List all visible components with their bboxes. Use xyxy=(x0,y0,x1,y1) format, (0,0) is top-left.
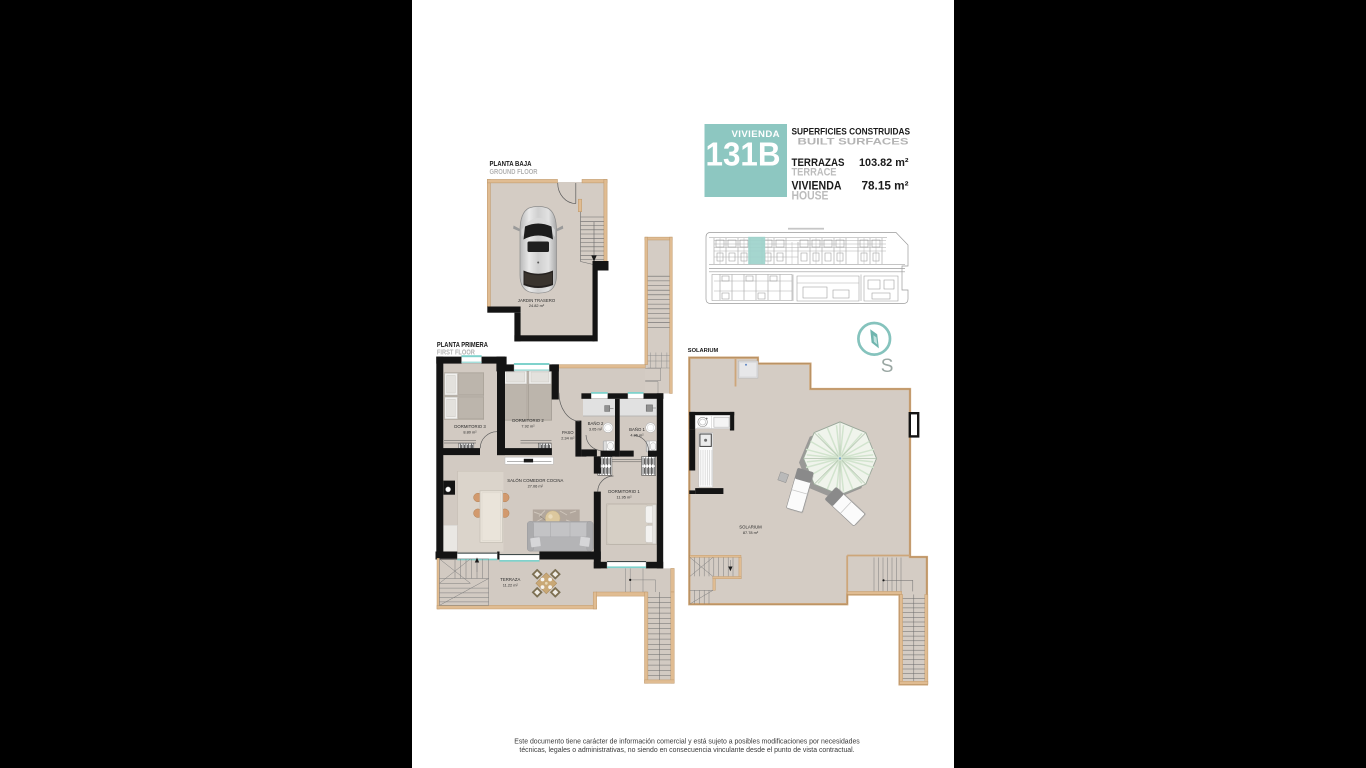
svg-text:3.05 m²: 3.05 m² xyxy=(589,426,603,431)
svg-text:DORMITORIO 1: DORMITORIO 1 xyxy=(608,489,640,494)
svg-text:PLANTA BAJA: PLANTA BAJA xyxy=(490,161,532,168)
svg-text:DORMITORIO 2: DORMITORIO 2 xyxy=(512,418,544,423)
svg-text:DORMITORIO 3: DORMITORIO 3 xyxy=(454,424,486,429)
svg-text:78.15 m²: 78.15 m² xyxy=(862,179,909,193)
svg-text:4.06 m²: 4.06 m² xyxy=(630,432,644,437)
svg-text:PLANTA PRIMERA: PLANTA PRIMERA xyxy=(437,342,488,349)
svg-text:BAÑO 2: BAÑO 2 xyxy=(588,421,604,426)
svg-text:7.92 m²: 7.92 m² xyxy=(521,423,535,428)
svg-text:Este documento tiene carácter: Este documento tiene carácter de informa… xyxy=(514,739,860,746)
svg-text:11.22 m²: 11.22 m² xyxy=(503,582,519,587)
svg-text:PASO: PASO xyxy=(562,430,574,435)
svg-text:S: S xyxy=(881,356,894,377)
svg-text:SALÓN COMEDOR COCINA: SALÓN COMEDOR COCINA xyxy=(507,478,563,483)
svg-text:GROUND FLOOR: GROUND FLOOR xyxy=(490,169,538,176)
svg-text:103.82 m²: 103.82 m² xyxy=(859,157,909,169)
svg-text:87.78 m²: 87.78 m² xyxy=(743,530,759,535)
svg-text:HOUSE: HOUSE xyxy=(792,189,829,203)
svg-text:SOLARIUM: SOLARIUM xyxy=(739,525,762,530)
svg-text:8.80 m²: 8.80 m² xyxy=(463,429,477,434)
svg-text:BUILT SURFACES: BUILT SURFACES xyxy=(798,137,909,147)
svg-text:11.95 m²: 11.95 m² xyxy=(616,494,632,499)
svg-text:24.82 m²: 24.82 m² xyxy=(529,303,545,308)
svg-text:SUPERFICIES CONSTRUIDAS: SUPERFICIES CONSTRUIDAS xyxy=(792,127,911,137)
svg-text:TERRAZA: TERRAZA xyxy=(500,577,520,582)
svg-text:131B: 131B xyxy=(706,137,781,174)
svg-text:BAÑO 1: BAÑO 1 xyxy=(629,427,645,432)
svg-text:técnicas, legales o administra: técnicas, legales o administrativas, no … xyxy=(519,747,854,754)
svg-text:SOLARIUM: SOLARIUM xyxy=(688,348,719,354)
svg-text:2.34 m²: 2.34 m² xyxy=(561,435,575,440)
svg-text:27.06 m²: 27.06 m² xyxy=(528,483,544,488)
svg-text:TERRACE: TERRACE xyxy=(792,167,837,179)
